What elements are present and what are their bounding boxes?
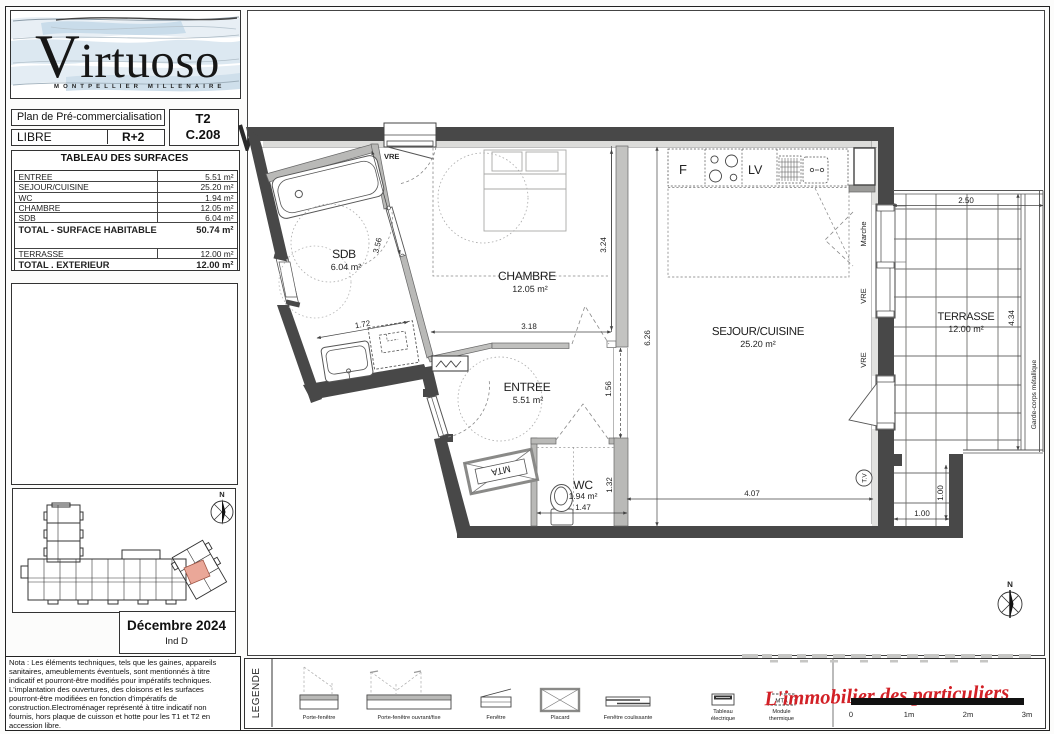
svg-text:Placard: Placard <box>551 714 570 721</box>
svg-text:12.05 m²: 12.05 m² <box>512 284 548 294</box>
svg-text:Tableau: Tableau <box>713 708 733 715</box>
svg-text:WC: WC <box>573 478 593 492</box>
svg-text:1.56: 1.56 <box>604 381 613 397</box>
svg-text:5.51 m²: 5.51 m² <box>513 395 544 405</box>
svg-text:6.04 m²: 6.04 m² <box>331 262 362 272</box>
svg-text:2.50: 2.50 <box>958 196 974 205</box>
svg-text:ENTREE: ENTREE <box>504 380 551 394</box>
svg-text:T.V: T.V <box>862 473 869 483</box>
svg-text:1.47: 1.47 <box>575 503 591 512</box>
svg-text:Fenêtre coulissante: Fenêtre coulissante <box>604 714 653 721</box>
svg-text:1.00: 1.00 <box>936 485 945 501</box>
svg-text:1m: 1m <box>904 710 914 719</box>
svg-text:N: N <box>1007 580 1013 589</box>
svg-text:6.26: 6.26 <box>643 330 652 346</box>
svg-text:L'immobilier des particuliers: L'immobilier des particuliers <box>763 682 1009 710</box>
svg-text:25.20 m²: 25.20 m² <box>740 339 776 349</box>
svg-text:TERRASSE: TERRASSE <box>938 311 995 323</box>
svg-text:SDB: SDB <box>332 247 356 261</box>
svg-text:Marche: Marche <box>859 221 868 246</box>
svg-text:thermique: thermique <box>769 715 794 722</box>
svg-text:1.32: 1.32 <box>605 477 614 493</box>
svg-text:VRE: VRE <box>859 352 868 367</box>
svg-text:3m: 3m <box>1022 710 1032 719</box>
svg-text:LEGENDE: LEGENDE <box>251 668 262 719</box>
svg-text:N: N <box>219 490 224 499</box>
svg-text:4.34: 4.34 <box>1007 310 1016 326</box>
svg-text:4.07: 4.07 <box>744 489 760 498</box>
svg-text:Garde-corps métallique: Garde-corps métallique <box>1031 359 1038 429</box>
svg-text:1.94 m²: 1.94 m² <box>569 491 598 501</box>
svg-text:3.18: 3.18 <box>521 322 537 331</box>
svg-text:électrique: électrique <box>711 715 735 722</box>
svg-text:Porte-fenêtre ouvrant/fixe: Porte-fenêtre ouvrant/fixe <box>377 714 440 721</box>
svg-text:3.24: 3.24 <box>599 237 608 253</box>
svg-text:3.56: 3.56 <box>371 236 384 254</box>
svg-text:Fenêtre: Fenêtre <box>486 714 505 721</box>
svg-text:F: F <box>679 162 687 177</box>
svg-text:SEJOUR/CUISINE: SEJOUR/CUISINE <box>712 326 805 338</box>
svg-text:CHAMBRE: CHAMBRE <box>498 269 556 283</box>
svg-text:12.00 m²: 12.00 m² <box>948 324 984 334</box>
svg-text:1.00: 1.00 <box>914 509 930 518</box>
svg-text:VRE: VRE <box>384 152 399 161</box>
svg-text:0: 0 <box>849 710 853 719</box>
svg-text:Porte-fenêtre: Porte-fenêtre <box>303 714 336 721</box>
svg-text:LV: LV <box>748 163 763 177</box>
svg-text:VRE: VRE <box>859 288 868 303</box>
svg-text:2m: 2m <box>963 710 973 719</box>
